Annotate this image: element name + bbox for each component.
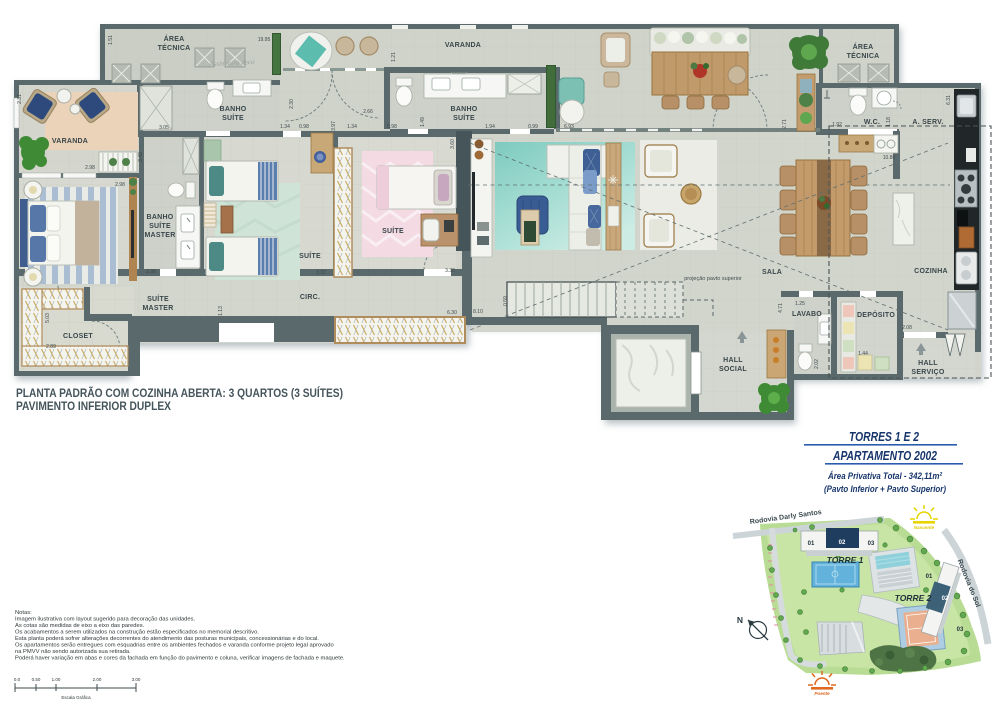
svg-text:SUÍTE: SUÍTE [382, 226, 404, 235]
svg-text:MASTER: MASTER [142, 305, 173, 312]
svg-text:1.49: 1.49 [420, 117, 426, 127]
svg-text:SUÍTE: SUÍTE [222, 113, 244, 122]
svg-text:2.08: 2.08 [902, 325, 912, 331]
svg-text:0.98: 0.98 [387, 124, 397, 130]
svg-text:HALL: HALL [723, 357, 743, 364]
svg-text:ÁREA: ÁREA [853, 42, 874, 51]
svg-text:na PMVV não sendo autorizada s: na PMVV não sendo autorizada sua retirad… [15, 649, 131, 655]
svg-text:3.60: 3.60 [450, 139, 456, 149]
svg-text:1.18: 1.18 [886, 117, 892, 127]
svg-text:Área Privativa Total - 342,11m: Área Privativa Total - 342,11m² [827, 471, 943, 482]
svg-text:Poderá haver variação em abas: Poderá haver variação em abas e cores da… [15, 656, 345, 662]
svg-text:2.98: 2.98 [115, 182, 125, 188]
svg-text:PLANTA PADRÃO COM COZINHA ABER: PLANTA PADRÃO COM COZINHA ABERTA: 3 QUAR… [16, 385, 343, 400]
svg-text:3.30: 3.30 [445, 268, 455, 274]
svg-text:0.0: 0.0 [14, 677, 21, 682]
svg-text:3.32: 3.32 [316, 270, 326, 276]
svg-text:CIRC.: CIRC. [300, 294, 320, 301]
svg-text:Os acabamentos a serem utiliza: Os acabamentos a serem utilizados na con… [15, 630, 259, 636]
svg-text:TÉCNICA: TÉCNICA [158, 43, 191, 52]
svg-text:TORRE 2: TORRE 2 [895, 593, 932, 603]
svg-text:W.C.: W.C. [864, 119, 880, 126]
svg-text:VARANDA: VARANDA [445, 42, 481, 49]
svg-text:HALL: HALL [918, 360, 938, 367]
svg-text:1.13: 1.13 [218, 306, 224, 316]
svg-text:2.66: 2.66 [363, 109, 373, 115]
svg-text:TORRE 1: TORRE 1 [827, 555, 864, 565]
svg-text:3.49: 3.49 [138, 152, 144, 162]
svg-text:APARTAMENTO 2002: APARTAMENTO 2002 [832, 449, 937, 463]
svg-text:DEPÓSITO: DEPÓSITO [857, 310, 895, 319]
svg-text:2.98: 2.98 [146, 269, 156, 275]
svg-text:SALA: SALA [762, 269, 782, 276]
svg-text:8.10: 8.10 [473, 309, 483, 315]
svg-text:0.59: 0.59 [503, 296, 509, 306]
svg-text:Imagem ilustrativa com layout: Imagem ilustrativa com layout sugerido p… [15, 617, 196, 623]
svg-text:01: 01 [808, 541, 815, 547]
svg-text:MASTER: MASTER [144, 232, 175, 239]
svg-text:Os apartamentos serão entregue: Os apartamentos serão entregues com esqu… [15, 643, 334, 649]
svg-text:3.05: 3.05 [159, 125, 169, 131]
svg-text:N: N [737, 615, 743, 625]
svg-text:3.97: 3.97 [331, 121, 337, 131]
svg-text:A. SERV.: A. SERV. [912, 119, 943, 126]
svg-text:2.71: 2.71 [782, 119, 788, 129]
svg-text:2.98: 2.98 [85, 165, 95, 171]
svg-text:Escala Gráfica: Escala Gráfica [61, 695, 91, 700]
svg-text:6.31: 6.31 [946, 95, 952, 105]
svg-text:SUÍTE: SUÍTE [453, 113, 475, 122]
svg-text:6.93: 6.93 [564, 124, 574, 130]
svg-text:19.95: 19.95 [258, 37, 271, 43]
svg-text:BANHO: BANHO [220, 106, 247, 113]
svg-text:SUÍTE: SUÍTE [299, 251, 321, 260]
svg-text:CLOSET: CLOSET [63, 333, 93, 340]
svg-text:2.31: 2.31 [17, 94, 23, 104]
svg-text:2.30: 2.30 [289, 99, 295, 109]
svg-text:0.50: 0.50 [32, 677, 41, 682]
svg-text:(Pavto Inferior + Pavto Superi: (Pavto Inferior + Pavto Superior) [824, 484, 946, 494]
svg-text:01: 01 [926, 574, 933, 580]
svg-text:4.71: 4.71 [778, 303, 784, 313]
svg-text:projeção pavto superior: projeção pavto superior [684, 276, 742, 282]
svg-text:02: 02 [839, 540, 846, 546]
svg-text:1.00: 1.00 [52, 677, 61, 682]
svg-text:LAVABO: LAVABO [792, 311, 822, 318]
svg-text:BANHO: BANHO [147, 214, 174, 221]
svg-text:0.98: 0.98 [299, 124, 309, 130]
svg-text:1.94: 1.94 [485, 124, 495, 130]
svg-text:1.92: 1.92 [832, 122, 842, 128]
svg-text:COZINHA: COZINHA [914, 268, 948, 275]
svg-text:03: 03 [868, 541, 875, 547]
svg-text:0.99: 0.99 [528, 124, 538, 130]
svg-text:1.44: 1.44 [858, 351, 868, 357]
svg-text:1.25: 1.25 [795, 301, 805, 307]
svg-text:Nascente: Nascente [914, 525, 935, 530]
svg-text:1.34: 1.34 [347, 124, 357, 130]
svg-text:02: 02 [942, 596, 949, 602]
svg-text:SOCIAL: SOCIAL [719, 366, 747, 373]
svg-text:TORRES 1 E 2: TORRES 1 E 2 [849, 430, 919, 444]
svg-text:SUÍTE: SUÍTE [147, 294, 169, 303]
svg-text:VARANDA: VARANDA [52, 138, 88, 145]
svg-text:SUÍTE: SUÍTE [149, 221, 171, 230]
svg-text:Poente: Poente [814, 691, 830, 696]
svg-text:Notas:: Notas: [15, 610, 32, 616]
svg-text:As cotas são medidas de eixo a: As cotas são medidas de eixo a eixo das … [15, 623, 145, 629]
svg-text:3.00: 3.00 [132, 677, 141, 682]
svg-text:2.02: 2.02 [814, 359, 820, 369]
svg-text:TÉCNICA: TÉCNICA [847, 51, 880, 60]
svg-text:2.00: 2.00 [93, 677, 102, 682]
svg-text:10.80: 10.80 [883, 155, 896, 161]
svg-text:BANHO: BANHO [451, 106, 478, 113]
svg-text:ÁREA: ÁREA [164, 34, 185, 43]
svg-text:PAVIMENTO INFERIOR DUPLEX: PAVIMENTO INFERIOR DUPLEX [16, 399, 171, 413]
svg-text:5.03: 5.03 [45, 313, 51, 323]
svg-text:1.21: 1.21 [391, 52, 397, 62]
svg-text:Esta planta poderá sofrer alte: Esta planta poderá sofrer alterações dec… [15, 636, 319, 642]
svg-text:1.34: 1.34 [280, 124, 290, 130]
svg-text:2.89: 2.89 [46, 344, 56, 350]
svg-text:6.30: 6.30 [447, 310, 457, 316]
svg-text:1.51: 1.51 [108, 35, 114, 45]
svg-text:03: 03 [957, 627, 964, 633]
svg-text:SERVIÇO: SERVIÇO [911, 369, 944, 376]
